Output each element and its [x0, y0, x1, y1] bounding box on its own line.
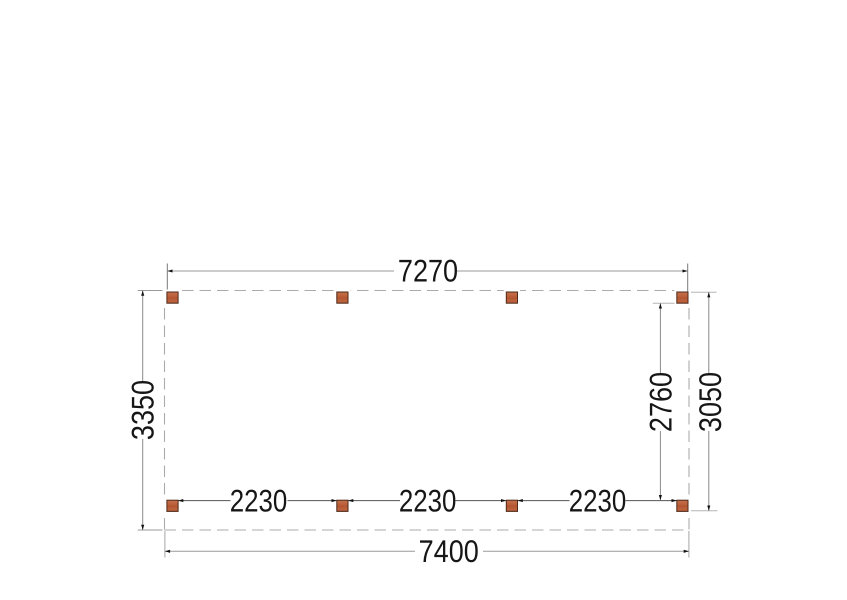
- svg-text:2230: 2230: [399, 483, 457, 518]
- svg-text:3050: 3050: [693, 372, 728, 432]
- svg-text:7400: 7400: [419, 534, 479, 569]
- svg-text:2230: 2230: [230, 483, 288, 518]
- svg-text:3350: 3350: [125, 380, 160, 440]
- svg-text:2230: 2230: [569, 483, 627, 518]
- svg-text:2760: 2760: [644, 372, 679, 432]
- svg-text:7270: 7270: [398, 254, 458, 289]
